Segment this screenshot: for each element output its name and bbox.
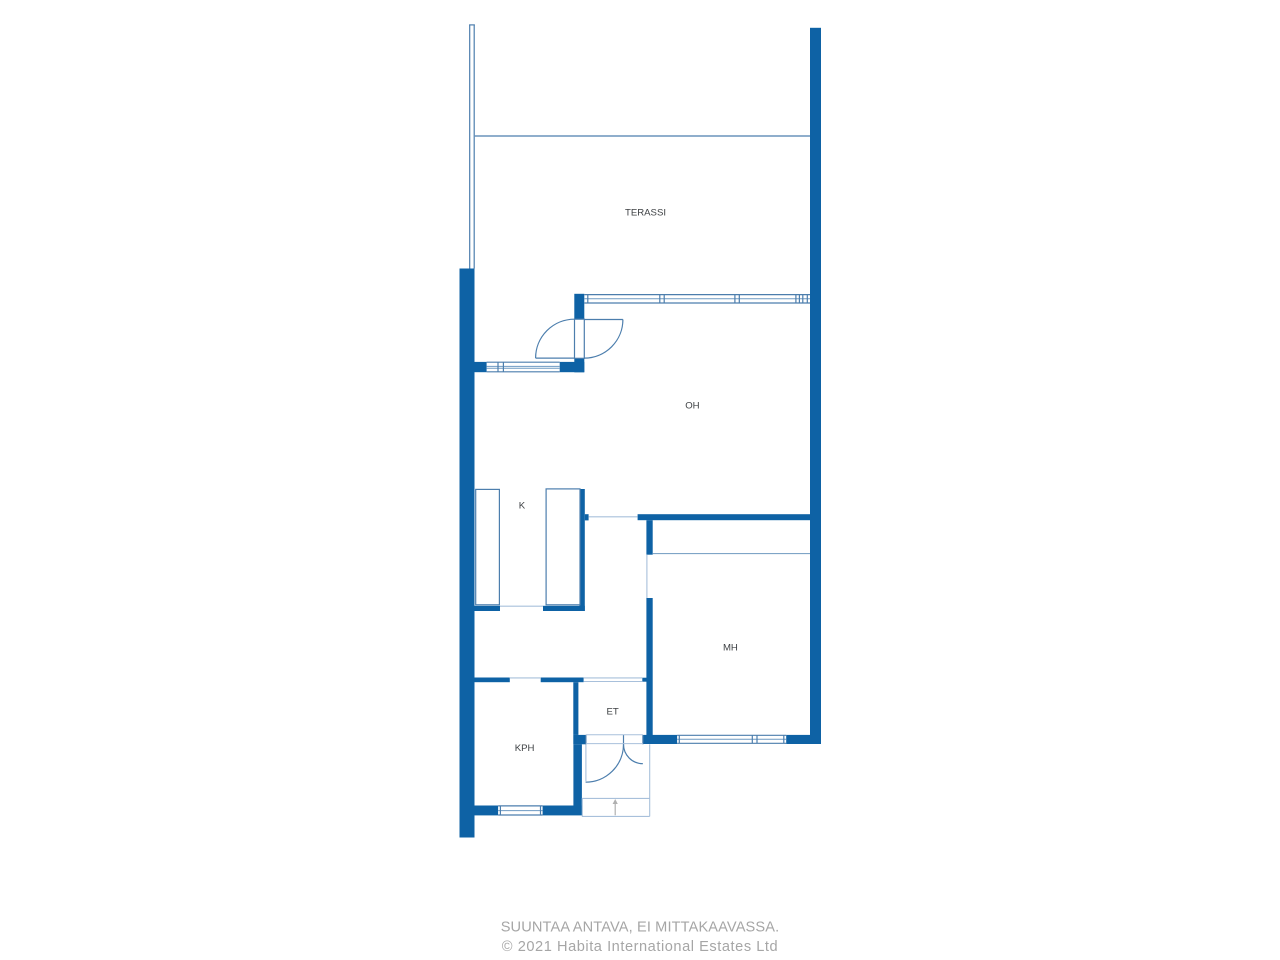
svg-text:TERASSI: TERASSI: [625, 208, 666, 219]
svg-text:ET: ET: [606, 706, 618, 717]
svg-text:SUUNTAA ANTAVA, EI MITTAKAAVAS: SUUNTAA ANTAVA, EI MITTAKAAVASSA.: [501, 919, 780, 935]
svg-text:OH: OH: [685, 401, 699, 412]
svg-text:K: K: [519, 500, 526, 511]
svg-text:© 2021 Habita International Es: © 2021 Habita International Estates Ltd: [502, 939, 778, 955]
svg-text:MH: MH: [723, 642, 738, 653]
svg-text:KPH: KPH: [515, 743, 535, 754]
